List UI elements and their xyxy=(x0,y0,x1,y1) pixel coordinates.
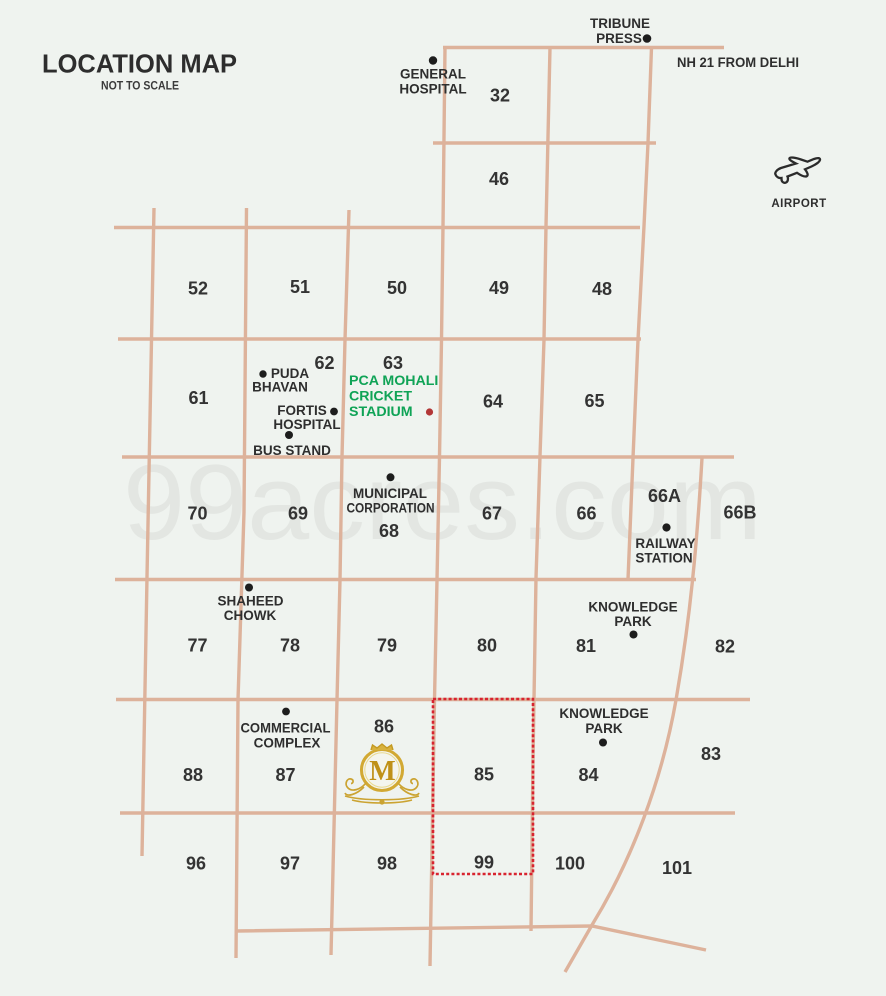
svg-text:LOCATION MAP: LOCATION MAP xyxy=(42,49,237,79)
svg-text:63: 63 xyxy=(383,353,403,373)
svg-text:50: 50 xyxy=(387,278,407,298)
svg-text:CRICKET: CRICKET xyxy=(349,389,412,405)
svg-text:98: 98 xyxy=(377,854,397,874)
svg-text:STATION: STATION xyxy=(635,551,692,566)
svg-text:PARK: PARK xyxy=(585,721,623,736)
svg-text:66B: 66B xyxy=(723,503,756,523)
svg-text:COMPLEX: COMPLEX xyxy=(254,736,321,751)
svg-text:62: 62 xyxy=(314,353,334,373)
svg-text:64: 64 xyxy=(483,392,503,412)
svg-text:BUS STAND: BUS STAND xyxy=(253,443,331,458)
svg-text:KNOWLEDGE: KNOWLEDGE xyxy=(559,706,648,721)
svg-text:TRIBUNE: TRIBUNE xyxy=(590,16,650,31)
svg-text:83: 83 xyxy=(701,744,721,764)
svg-text:96: 96 xyxy=(186,854,206,874)
svg-text:STADIUM: STADIUM xyxy=(349,404,413,420)
svg-text:100: 100 xyxy=(555,854,585,874)
svg-text:PRESS: PRESS xyxy=(596,31,642,46)
svg-text:66: 66 xyxy=(576,504,596,524)
svg-text:81: 81 xyxy=(576,636,596,656)
svg-text:78: 78 xyxy=(280,636,300,656)
svg-text:48: 48 xyxy=(592,279,612,299)
svg-text:MUNICIPAL: MUNICIPAL xyxy=(353,486,427,501)
svg-text:79: 79 xyxy=(377,636,397,656)
svg-text:87: 87 xyxy=(275,765,295,785)
svg-text:32: 32 xyxy=(490,86,510,106)
svg-text:GENERAL: GENERAL xyxy=(400,67,466,82)
svg-text:49: 49 xyxy=(489,278,509,298)
svg-text:66A: 66A xyxy=(648,486,681,506)
svg-text:51: 51 xyxy=(290,277,310,297)
svg-text:COMMERCIAL: COMMERCIAL xyxy=(241,721,331,736)
svg-text:82: 82 xyxy=(715,637,735,657)
svg-text:BHAVAN: BHAVAN xyxy=(252,380,308,395)
svg-text:77: 77 xyxy=(187,636,207,656)
svg-text:SHAHEED: SHAHEED xyxy=(217,594,283,609)
svg-text:AIRPORT: AIRPORT xyxy=(771,198,826,210)
svg-text:PARK: PARK xyxy=(614,614,652,629)
svg-text:NOT TO SCALE: NOT TO SCALE xyxy=(101,79,179,93)
svg-text:80: 80 xyxy=(477,636,497,656)
svg-text:68: 68 xyxy=(379,521,399,541)
svg-text:46: 46 xyxy=(489,169,509,189)
svg-text:84: 84 xyxy=(578,765,598,785)
svg-text:PCA MOHALI: PCA MOHALI xyxy=(349,373,438,389)
svg-text:NH 21 FROM DELHI: NH 21 FROM DELHI xyxy=(677,55,799,70)
svg-text:RAILWAY: RAILWAY xyxy=(635,536,695,551)
svg-text:FORTIS: FORTIS xyxy=(277,403,327,418)
svg-text:97: 97 xyxy=(280,854,300,874)
svg-text:M: M xyxy=(369,756,395,787)
svg-text:67: 67 xyxy=(482,504,502,524)
svg-text:52: 52 xyxy=(188,279,208,299)
svg-text:KNOWLEDGE: KNOWLEDGE xyxy=(588,600,677,615)
svg-text:CORPORATION: CORPORATION xyxy=(347,500,435,515)
svg-text:69: 69 xyxy=(288,504,308,524)
svg-text:85: 85 xyxy=(474,765,494,785)
svg-text:65: 65 xyxy=(584,391,604,411)
svg-text:61: 61 xyxy=(188,388,208,408)
svg-text:88: 88 xyxy=(183,765,203,785)
svg-text:99: 99 xyxy=(474,853,494,873)
svg-text:HOSPITAL: HOSPITAL xyxy=(273,417,340,432)
svg-text:HOSPITAL: HOSPITAL xyxy=(399,82,466,97)
svg-text:86: 86 xyxy=(374,717,394,737)
svg-text:101: 101 xyxy=(662,858,692,878)
svg-text:70: 70 xyxy=(187,504,207,524)
svg-text:CHOWK: CHOWK xyxy=(224,608,277,623)
